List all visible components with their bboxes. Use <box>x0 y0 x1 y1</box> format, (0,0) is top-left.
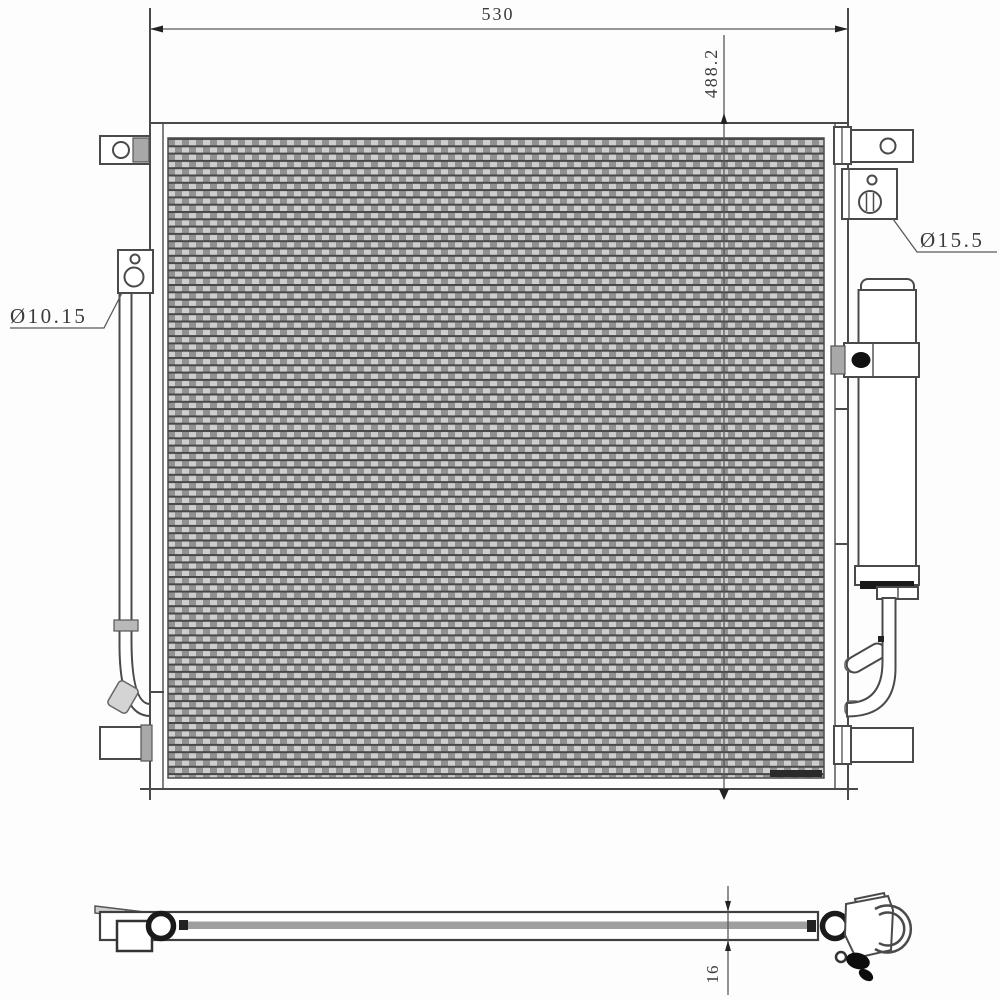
drawing-canvas: 530 488.2 <box>0 0 1000 1000</box>
receiver-drier <box>831 279 919 599</box>
pipe-collar <box>114 620 138 631</box>
fin-core <box>168 138 824 778</box>
bleed-hole <box>868 176 877 185</box>
port-hole <box>859 191 881 213</box>
left-inlet-pipe <box>106 293 150 716</box>
bracket-top-right <box>834 127 913 164</box>
bracket-top-left <box>100 136 150 164</box>
bracket-plate <box>851 728 913 762</box>
arrow-bottom <box>719 789 729 800</box>
bracket-clamp <box>141 725 152 761</box>
condenser-core <box>140 8 858 800</box>
drier-body <box>859 290 917 567</box>
outlet-port-fitting: Ø15.5 <box>842 169 997 252</box>
pipe-dot <box>878 636 884 642</box>
left-pipe-ring <box>149 914 174 939</box>
bracket-bottom-right <box>834 726 913 764</box>
width-dimension-text: 530 <box>482 4 515 24</box>
drier-bottom-view <box>836 893 911 984</box>
mounting-hole <box>881 139 896 154</box>
right-pipe-ring <box>823 914 848 939</box>
arrow-right <box>835 26 848 33</box>
right-port-label: Ø15.5 <box>920 228 984 252</box>
height-dimension-text: 488.2 <box>701 48 721 99</box>
clamp-block <box>831 346 845 374</box>
arrow-left <box>150 26 163 33</box>
mounting-hole <box>113 142 129 158</box>
thickness-dimension-text: 16 <box>703 965 722 984</box>
fin-dark-segment <box>770 770 822 777</box>
port-hole <box>125 268 144 287</box>
bleed-hole <box>131 255 140 264</box>
small-port-circle <box>836 952 846 962</box>
dimension-overall-width: 530 <box>150 4 848 33</box>
core-bar-stripe <box>188 922 808 930</box>
drier-pipes <box>844 598 896 717</box>
pipe-run <box>120 293 151 716</box>
arrow-top <box>721 113 728 124</box>
bar-end-block-left <box>179 920 188 930</box>
left-port-label: Ø10.15 <box>10 304 87 328</box>
arrow-top <box>725 901 731 912</box>
bar-end-block-right <box>807 920 816 932</box>
bracket-clamp <box>133 138 149 162</box>
bottom-view: 16 <box>95 886 911 995</box>
clamp-bolt <box>852 352 871 368</box>
bracket-bottom-left <box>100 725 152 761</box>
condenser-technical-drawing: 530 488.2 <box>0 0 1000 1000</box>
front-view: 530 488.2 <box>10 4 997 800</box>
arrow-bottom <box>725 941 731 952</box>
